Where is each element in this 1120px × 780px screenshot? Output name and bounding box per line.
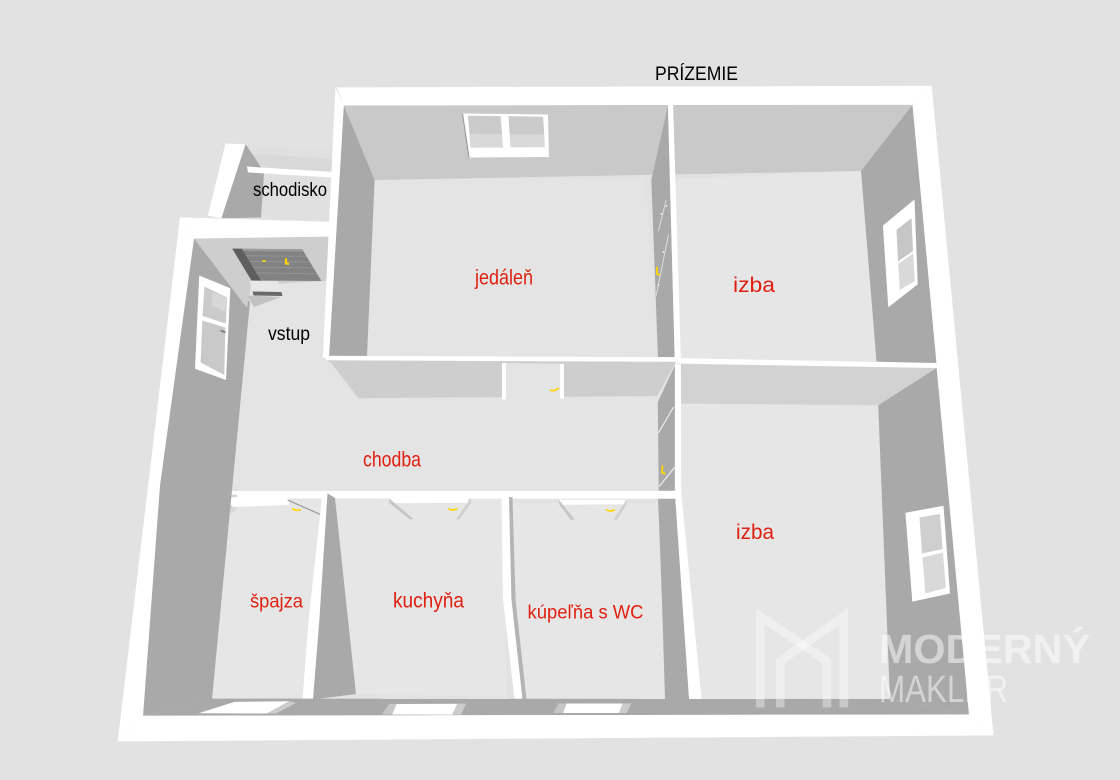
svg-text:špajza: špajza <box>250 591 303 613</box>
svg-text:izba: izba <box>733 274 775 297</box>
svg-text:chodba: chodba <box>363 449 421 472</box>
svg-text:kuchyňa: kuchyňa <box>393 590 464 613</box>
svg-text:izba: izba <box>736 521 774 544</box>
svg-text:jedáleň: jedáleň <box>474 267 533 290</box>
svg-text:MODERNÝ: MODERNÝ <box>879 626 1090 672</box>
svg-text:vstup: vstup <box>268 324 310 345</box>
svg-text:MAKLÉR: MAKLÉR <box>879 668 1008 711</box>
svg-text:PRÍZEMIE: PRÍZEMIE <box>655 62 738 85</box>
svg-text:schodisko: schodisko <box>253 179 327 201</box>
svg-text:kúpeľňa s WC: kúpeľňa s WC <box>528 603 644 624</box>
